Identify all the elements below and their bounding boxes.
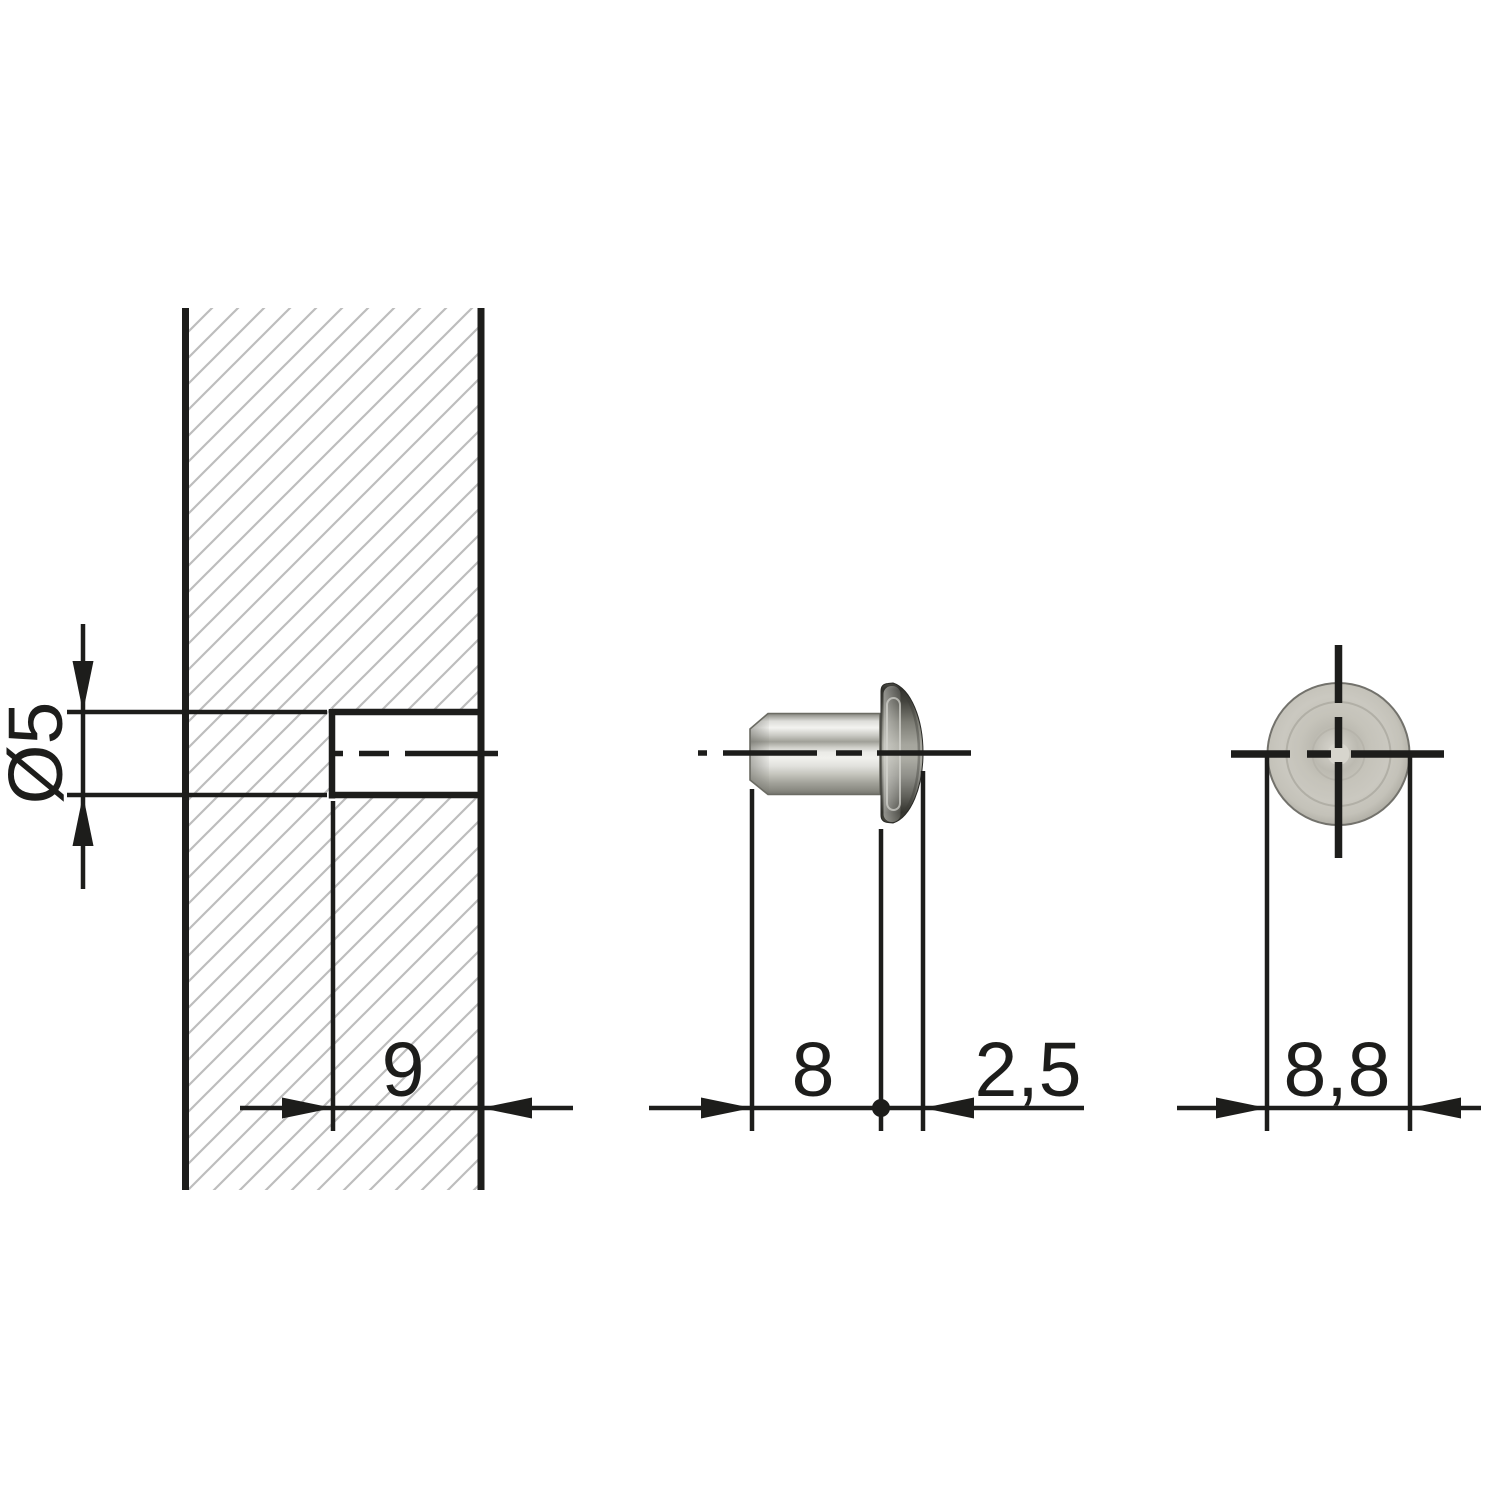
panel-cross-section-view: Ø5 9 xyxy=(0,308,573,1190)
label-hole-diameter: Ø5 xyxy=(0,702,79,805)
arrowhead-right xyxy=(701,1098,752,1119)
arrowhead-right xyxy=(1216,1098,1267,1119)
label-head-diameter: 8,8 xyxy=(1283,1027,1390,1113)
rivet-nut-front-view: 8,8 xyxy=(1177,645,1481,1131)
label-body-length: 8 xyxy=(792,1027,835,1113)
technical-drawing-canvas: Ø5 9 xyxy=(0,0,1500,1500)
arrowhead-left xyxy=(923,1098,974,1119)
label-hole-depth: 9 xyxy=(382,1027,425,1113)
dim-body-length-and-head-thickness: 8 2,5 xyxy=(649,771,1084,1131)
label-head-thickness: 2,5 xyxy=(974,1027,1081,1113)
rivet-nut-side-view: 8 2,5 xyxy=(649,683,1084,1131)
arrowhead-left xyxy=(1410,1098,1461,1119)
arrowhead-left xyxy=(481,1098,532,1119)
dimension-dot xyxy=(872,1099,890,1117)
technical-drawing-page: Ø5 9 xyxy=(0,0,1500,1500)
